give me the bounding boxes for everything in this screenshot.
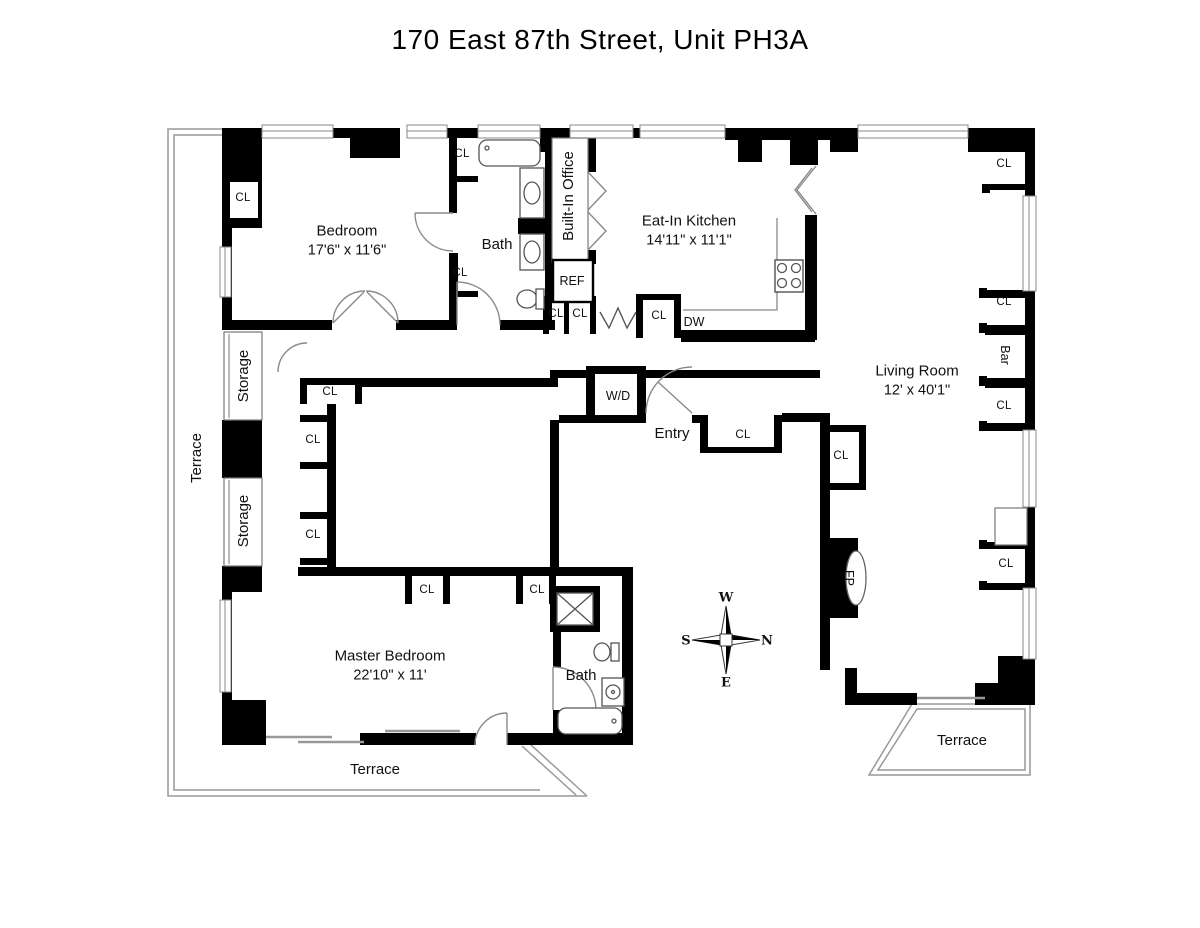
floor-plan-drawing xyxy=(0,0,1200,928)
toilet xyxy=(517,290,537,308)
kitchen-counter xyxy=(683,218,777,310)
compass-rose xyxy=(692,606,760,674)
toilet-tank xyxy=(611,643,619,661)
toilet xyxy=(594,643,610,661)
bathtub xyxy=(479,140,540,166)
shelf-niche xyxy=(995,508,1027,545)
sink xyxy=(524,241,540,263)
toilet-tank xyxy=(536,289,544,309)
bedroom-closet-interior xyxy=(230,182,258,218)
sink xyxy=(524,182,540,204)
floor-plan-page: 170 East 87th Street, Unit PH3A xyxy=(0,0,1200,928)
refrigerator-box xyxy=(553,260,593,302)
fireplace-niche xyxy=(846,551,866,605)
built-in-office-box xyxy=(552,138,588,262)
walls xyxy=(222,128,1035,745)
storage-boxes xyxy=(224,138,1027,566)
